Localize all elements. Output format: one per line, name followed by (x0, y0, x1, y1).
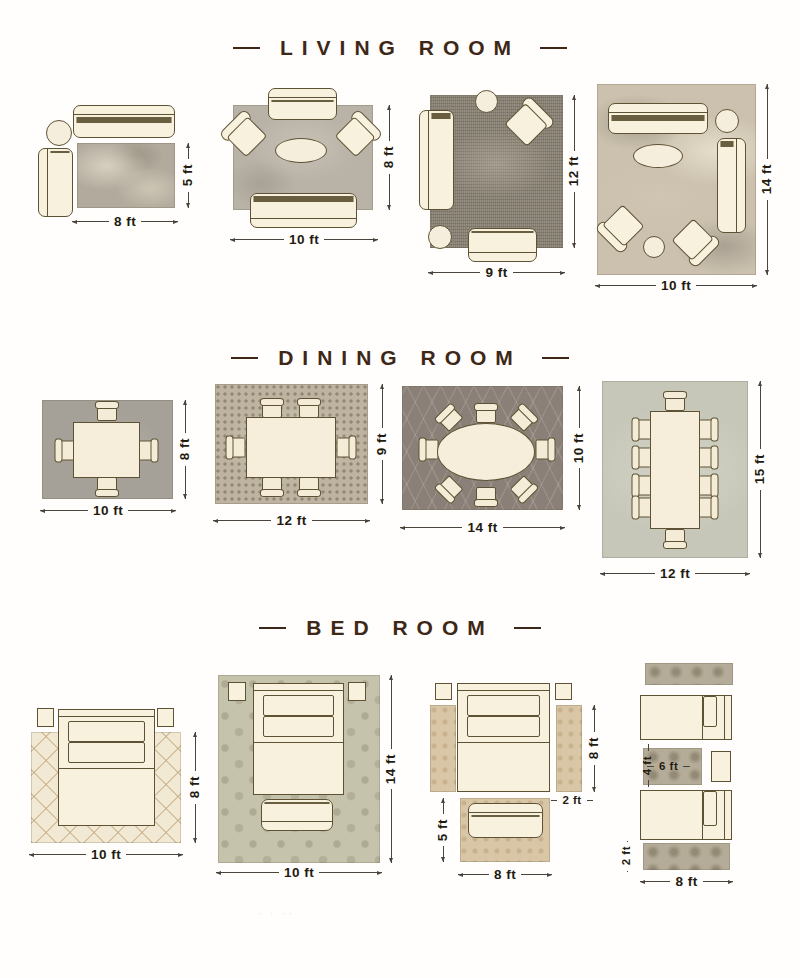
section-title: DINING ROOM (278, 346, 522, 370)
dining-chair-icon (665, 529, 685, 544)
dim-label: 12 ft (660, 567, 690, 581)
dim-label: 8 ft (382, 146, 396, 168)
dining-chair-icon (699, 498, 714, 518)
dim-accent-rug-width: 6 ft (647, 761, 700, 773)
dim-width: 8 ft (458, 868, 552, 882)
dim-height: 8 ft (381, 105, 397, 210)
dining-chair-icon (476, 408, 496, 423)
dim-height: 14 ft (383, 675, 399, 863)
sofa-3-seat-icon (608, 103, 708, 134)
dining-chair-icon (299, 477, 319, 492)
bedside-runner-rug (430, 705, 456, 792)
dim-width: 9 ft (428, 266, 565, 280)
dim-width: 12 ft (213, 514, 370, 528)
section-header-living-room: LIVING ROOM (0, 36, 800, 60)
dim-label: 2 ft (562, 795, 581, 807)
dining-chair-icon (299, 403, 319, 418)
title-dash-right (514, 627, 541, 629)
dining-chair-icon (262, 477, 282, 492)
dining-chair-icon (231, 438, 246, 458)
oval-dining-table-icon (437, 423, 535, 481)
dim-width: 10 ft (595, 279, 757, 293)
dim-label: 9 ft (485, 266, 507, 280)
dim-width: 8 ft (640, 875, 733, 889)
dim-height: 14 ft (759, 84, 775, 275)
round-ottoman-icon (643, 236, 665, 258)
dim-height: 8 ft (177, 400, 193, 499)
nightstand-icon (435, 683, 452, 700)
dining-chair-icon (139, 441, 154, 461)
dim-runner-width: 2 ft (551, 795, 593, 807)
round-side-table-icon (715, 109, 739, 133)
dim-label: 8 ft (188, 776, 202, 798)
dim-label: 5 ft (436, 819, 450, 841)
dim-height: 8 ft (187, 732, 203, 843)
sofa-3-seat-icon (717, 138, 746, 233)
dim-label: 2 ft (621, 846, 633, 865)
title-dash-left (259, 627, 286, 629)
oval-coffee-table-icon (633, 144, 683, 168)
watermark: · · ·· (258, 908, 295, 919)
dim-label: 15 ft (753, 454, 767, 484)
runner-rug (645, 663, 733, 685)
dim-label: 8 ft (494, 868, 516, 882)
dim-label: 10 ft (284, 866, 314, 880)
nightstand-icon (555, 683, 572, 700)
bench-icon (468, 803, 543, 838)
dim-label: 9 ft (375, 433, 389, 455)
long-dining-table-icon (650, 411, 700, 529)
dim-label: 6 ft (659, 761, 678, 773)
round-side-table-icon (475, 90, 498, 113)
rug-size-guide: LIVING ROOM 8 ft 5 ft 10 ft 8 ft 9 ft 12… (0, 0, 800, 978)
sofa-3-seat-icon (250, 193, 357, 228)
dim-height: 10 ft (571, 386, 587, 510)
title-dash-right (542, 357, 569, 359)
dim-label: 10 ft (93, 504, 123, 518)
section-header-bed-room: BED ROOM (0, 616, 800, 640)
dim-height: 9 ft (374, 384, 390, 504)
dim-height: 12 ft (566, 95, 582, 248)
dining-chair-icon (699, 448, 714, 468)
dim-height: 5 ft (180, 143, 196, 208)
dim-label: 12 ft (567, 156, 581, 186)
twin-bed-icon (640, 695, 732, 740)
dining-table-icon (73, 422, 140, 478)
dim-width: 10 ft (216, 866, 382, 880)
dining-chair-icon (699, 420, 714, 440)
dim-width: 12 ft (600, 567, 750, 581)
nightstand-icon (711, 751, 731, 782)
loveseat-icon (268, 88, 337, 120)
round-ottoman-icon (428, 225, 452, 249)
dim-runner-height: 8 ft (586, 705, 602, 792)
dim-foot-rug-height: 5 ft (435, 798, 451, 862)
dining-chair-icon (699, 476, 714, 496)
living-rug-8x5 (77, 143, 175, 208)
oval-coffee-table-icon (275, 138, 327, 163)
title-dash-left (231, 357, 258, 359)
nightstand-icon (228, 682, 246, 701)
runner-rug (643, 843, 730, 870)
dining-chair-icon (97, 406, 117, 421)
dim-label: 8 ft (675, 875, 697, 889)
dim-height: 15 ft (752, 381, 768, 558)
dining-chair-icon (536, 440, 551, 460)
dim-width: 10 ft (29, 848, 183, 862)
dim-label: 10 ft (661, 279, 691, 293)
sofa-3-seat-icon (419, 110, 454, 210)
dining-chair-icon (337, 438, 352, 458)
sofa-3-seat-icon (73, 105, 175, 138)
dim-runner-width: 2 ft (619, 841, 635, 871)
queen-bed-icon (58, 709, 155, 826)
bench-icon (261, 799, 333, 831)
dim-width: 14 ft (400, 521, 565, 535)
title-dash-right (540, 47, 567, 49)
dim-label: 12 ft (276, 514, 306, 528)
chaise-icon (38, 148, 73, 217)
dining-chair-icon (97, 477, 117, 492)
round-side-table-icon (46, 120, 72, 146)
dim-width: 10 ft (40, 504, 176, 518)
loveseat-icon (468, 228, 537, 262)
nightstand-icon (157, 708, 174, 727)
dim-label: 8 ft (114, 215, 136, 229)
dim-label: 8 ft (587, 737, 601, 759)
dim-width: 10 ft (230, 233, 378, 247)
dim-width: 8 ft (72, 215, 178, 229)
dining-chair-icon (262, 403, 282, 418)
dim-label: 10 ft (91, 848, 121, 862)
bedside-runner-rug (556, 705, 582, 792)
dim-label: 8 ft (178, 438, 192, 460)
section-title: BED ROOM (306, 616, 494, 640)
dim-label: 14 ft (384, 754, 398, 784)
queen-bed-icon (457, 683, 550, 792)
dim-label: 14 ft (467, 521, 497, 535)
nightstand-icon (348, 682, 366, 701)
section-header-dining-room: DINING ROOM (0, 346, 800, 370)
section-title: LIVING ROOM (280, 36, 520, 60)
nightstand-icon (37, 708, 54, 727)
dining-chair-icon (476, 487, 496, 502)
title-dash-left (233, 47, 260, 49)
dim-label: 14 ft (760, 164, 774, 194)
dim-label: 10 ft (289, 233, 319, 247)
twin-bed-icon (640, 790, 732, 840)
dining-table-icon (246, 417, 336, 478)
queen-bed-icon (253, 683, 344, 795)
dim-label: 10 ft (572, 433, 586, 463)
dim-label: 5 ft (181, 164, 195, 186)
dining-chair-icon (665, 396, 685, 411)
